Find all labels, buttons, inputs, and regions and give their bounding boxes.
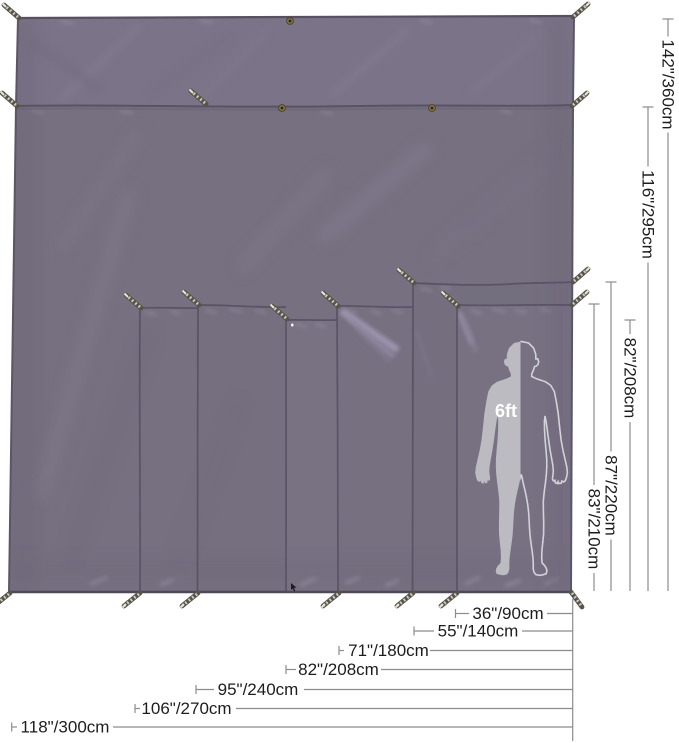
- svg-text:6ft: 6ft: [495, 401, 517, 421]
- svg-text:116"/295cm: 116"/295cm: [639, 170, 658, 259]
- svg-text:95"/240cm: 95"/240cm: [218, 680, 299, 699]
- svg-text:142"/360cm: 142"/360cm: [659, 39, 678, 129]
- svg-text:82"/208cm: 82"/208cm: [621, 338, 640, 419]
- svg-text:55"/140cm: 55"/140cm: [438, 622, 519, 641]
- svg-text:106"/270cm: 106"/270cm: [141, 699, 231, 718]
- svg-text:83"/210cm: 83"/210cm: [585, 489, 604, 570]
- svg-text:36"/90cm: 36"/90cm: [472, 604, 543, 623]
- svg-text:118"/300cm: 118"/300cm: [21, 718, 110, 737]
- svg-text:82"/208cm: 82"/208cm: [298, 660, 379, 679]
- svg-text:71"/180cm: 71"/180cm: [348, 641, 429, 660]
